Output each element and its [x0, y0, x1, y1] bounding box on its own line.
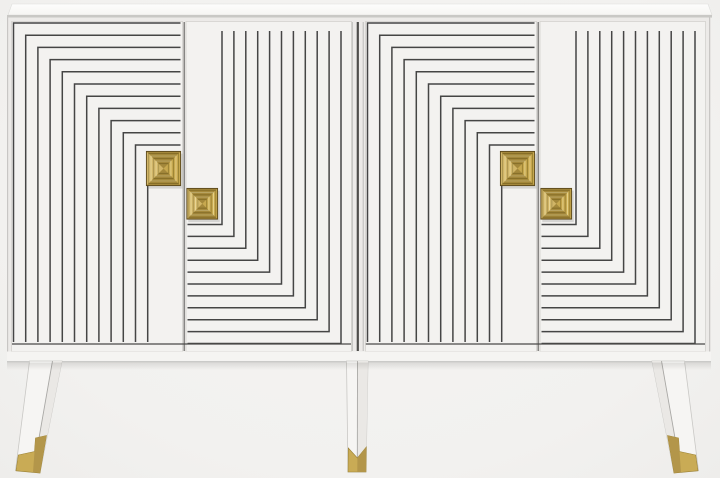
door-2: [186, 22, 352, 352]
leg-outer-left: [16, 361, 63, 473]
leg-middle: [347, 361, 369, 472]
cabinet-top-face: [7, 4, 712, 18]
leg-outer-right: [652, 361, 699, 473]
top-edge-line: [7, 15, 712, 18]
handle-door-2: [187, 188, 220, 222]
door-4: [540, 22, 706, 352]
handle-door-4: [541, 188, 574, 222]
handle-door-3: [500, 151, 537, 189]
product-photo-stage: [0, 0, 720, 478]
base-strip: [7, 352, 711, 363]
handle-door-1: [146, 151, 183, 189]
body-shadow: [7, 363, 711, 371]
sideboard-illustration: [0, 0, 720, 478]
legs: [16, 361, 699, 473]
